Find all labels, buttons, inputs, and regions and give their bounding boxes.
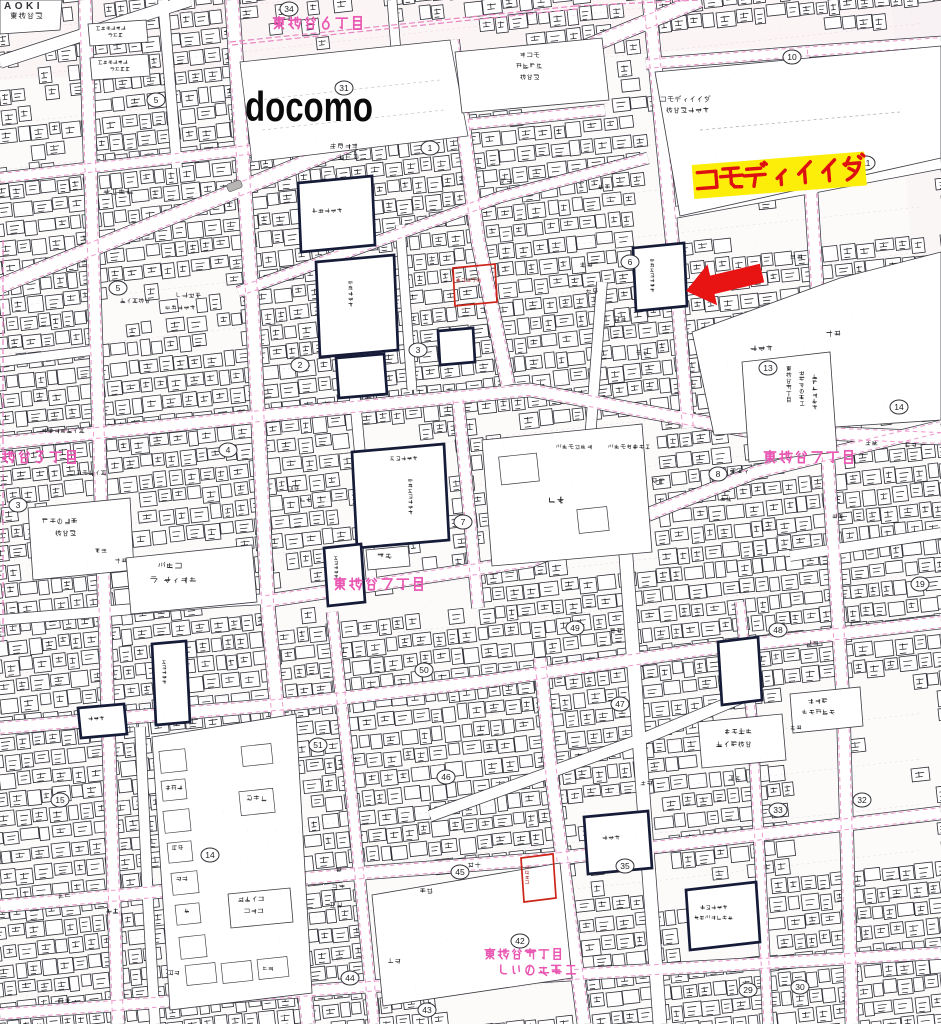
- svg-text:47: 47: [615, 699, 625, 709]
- svg-text:8: 8: [716, 469, 721, 479]
- svg-text:29: 29: [743, 985, 753, 995]
- svg-text:45: 45: [455, 867, 465, 877]
- svg-text:50: 50: [419, 665, 429, 675]
- svg-text:10: 10: [787, 52, 797, 62]
- svg-text:13: 13: [763, 363, 773, 373]
- svg-text:48: 48: [773, 625, 783, 635]
- svg-text:46: 46: [441, 772, 451, 782]
- svg-text:31: 31: [339, 83, 349, 93]
- svg-text:19: 19: [915, 579, 925, 589]
- svg-text:42: 42: [515, 936, 525, 946]
- svg-text:35: 35: [620, 861, 630, 871]
- svg-text:AOKI: AOKI: [4, 1, 43, 12]
- svg-text:51: 51: [313, 740, 323, 750]
- svg-text:6: 6: [628, 257, 633, 267]
- svg-text:4: 4: [226, 445, 231, 455]
- svg-text:14: 14: [205, 850, 215, 860]
- svg-text:44: 44: [345, 973, 355, 983]
- svg-text:3: 3: [416, 345, 421, 355]
- svg-text:32: 32: [857, 795, 867, 805]
- svg-text:5: 5: [116, 283, 121, 293]
- svg-text:7: 7: [461, 517, 466, 527]
- svg-text:1: 1: [428, 143, 433, 153]
- svg-text:14: 14: [894, 402, 904, 412]
- svg-text:30: 30: [795, 982, 805, 992]
- svg-text:33: 33: [773, 805, 783, 815]
- svg-text:34: 34: [284, 4, 294, 14]
- svg-text:docomo: docomo: [245, 83, 373, 130]
- svg-text:43: 43: [422, 1005, 432, 1015]
- svg-text:49: 49: [570, 623, 580, 633]
- svg-text:2: 2: [298, 360, 303, 370]
- svg-text:3: 3: [16, 500, 21, 510]
- svg-text:15: 15: [55, 795, 65, 805]
- svg-text:5: 5: [154, 95, 159, 105]
